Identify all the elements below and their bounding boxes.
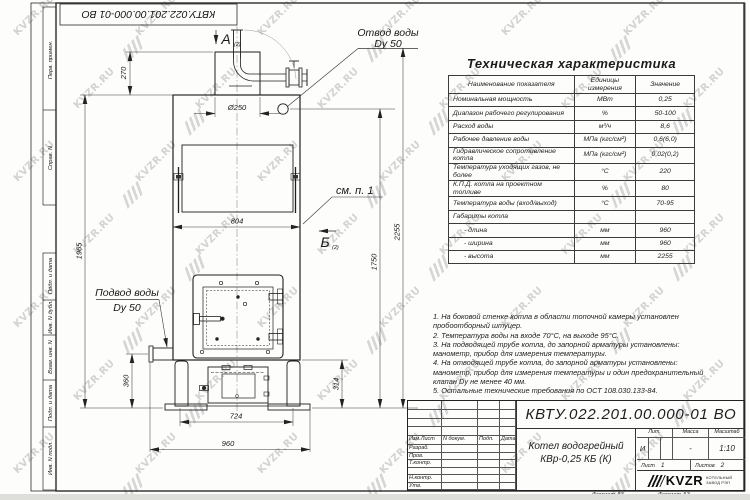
signature-row: Пров. — [408, 453, 516, 461]
field-sprav-n: Справ. N — [48, 145, 54, 170]
signature-role-label: Т.контр. — [408, 460, 442, 468]
sheet-edge-shadow — [0, 494, 750, 500]
dim-2255: 2255 — [393, 223, 402, 242]
spec-cell: Расход воды — [449, 120, 575, 133]
spare-cell — [500, 427, 516, 436]
signature-empty-cell — [478, 453, 500, 461]
spec-table-title: Техническая характеристика — [448, 56, 695, 71]
spec-cell: 960 — [636, 237, 695, 250]
signature-empty-cell — [442, 453, 478, 461]
note-item: 4. На отводящей трубе котла, до запорной… — [433, 358, 715, 386]
title-block: Изм.Лист N докум. Подп. Дата Разраб.Пров… — [407, 400, 745, 491]
spec-row: Номинальная мощностьМВт0,25 — [449, 94, 695, 107]
signature-empty-cell — [478, 445, 500, 453]
signature-rows: Разраб.Пров.Т.контр.Н.контр.Утв. — [408, 445, 516, 490]
dim-804: 804 — [231, 217, 244, 226]
spare-cell — [442, 410, 478, 419]
field-vzam-inv: Взам. инв. N — [48, 339, 54, 374]
note-item: 2. Температура воды на входе 70°С, на вы… — [433, 331, 715, 340]
lit-label: Лит. — [637, 429, 673, 438]
company-logo: KVZR КОТЕЛЬНЫЙ ЗАВОД РЭП — [637, 471, 745, 490]
door-hinge-top — [269, 294, 283, 301]
spec-cell: - ширина — [449, 237, 575, 250]
spec-cell — [574, 210, 636, 223]
product-name-line2: КВр-0,25 КБ (К) — [517, 453, 635, 466]
door-handle — [194, 314, 200, 325]
spec-cell: % — [574, 180, 636, 197]
signature-empty-cell — [500, 483, 516, 491]
field-podp-data-1: Подп. и дата — [48, 257, 54, 294]
signature-empty-cell — [442, 483, 478, 491]
spec-row: К.П.Д. котла на проектном топливе%80 — [449, 180, 695, 197]
spec-cell: Диапазон рабочего регулирования — [449, 107, 575, 120]
spec-cell: °С — [574, 197, 636, 210]
spec-cell: МПа (кгс/см²) — [574, 134, 636, 147]
spec-cell: 0,6(6,0) — [636, 134, 695, 147]
signature-empty-cell — [478, 460, 500, 468]
spec-cell: 70-95 — [636, 197, 695, 210]
mass-value: - — [673, 438, 709, 460]
boiler-front-view — [149, 30, 310, 410]
spare-cell — [442, 401, 478, 410]
spec-row: Габариты котла — [449, 210, 695, 223]
revision-spare-grid — [408, 401, 516, 436]
spare-cell — [408, 419, 442, 428]
product-name: Котел водогрейный КВр-0,25 КБ (К) — [516, 429, 636, 490]
view-rotation-arc — [244, 30, 296, 79]
spec-cell: м³/ч — [574, 120, 636, 133]
scale-label: Масштаб — [709, 429, 745, 438]
lit-mass-scale-block: Лит. Масса Масштаб И - 1:10 Лист1 Листов… — [637, 429, 745, 471]
signature-role-label — [408, 468, 442, 476]
spec-cell: 0,25 — [636, 94, 695, 107]
spec-cell: - высота — [449, 251, 575, 264]
col-data: Дата — [500, 436, 516, 445]
inlet-pipe — [149, 346, 173, 362]
drawing-sheet: KVZR.RUKVZR.RUKVZR.RUKVZR.RUKVZR.RUKVZR.… — [0, 0, 750, 500]
view-b-sub: (2) — [332, 245, 339, 251]
spec-row: Гидравлическое сопротивление котлаМПа (к… — [449, 147, 695, 164]
ash-door — [200, 366, 270, 404]
spare-cell — [478, 419, 500, 428]
spec-col-value: Значение — [636, 76, 695, 94]
spare-cell — [500, 410, 516, 419]
revision-header-row: Изм.Лист N докум. Подп. Дата — [408, 436, 516, 445]
spare-cell — [500, 401, 516, 410]
spec-row: - длинамм960 — [449, 224, 695, 237]
spec-row: - ширинамм960 — [449, 237, 695, 250]
signature-role-label: Утв. — [408, 483, 442, 491]
spec-cell: МПа (кгс/см²) — [574, 147, 636, 164]
spec-cell: - длина — [449, 224, 575, 237]
signature-row: Н.контр. — [408, 475, 516, 483]
spare-cell — [478, 401, 500, 410]
view-b-label: Б — [320, 234, 329, 250]
dim-360: 360 — [122, 374, 131, 387]
signature-empty-cell — [500, 468, 516, 476]
spec-cell: мм — [574, 251, 636, 264]
frame-field-labels: Перв. примен. Справ. N Подп. и дата Инв.… — [48, 8, 215, 475]
spec-row: Температура воды (вход/выход)°С70-95 — [449, 197, 695, 210]
spare-cell — [478, 410, 500, 419]
see-note-label: см. п. 1 — [336, 185, 373, 197]
mass-label: Масса — [673, 429, 709, 438]
signature-row: Разраб. — [408, 445, 516, 453]
dim-724: 724 — [230, 412, 243, 421]
signature-role-label: Разраб. — [408, 445, 442, 453]
view-a-sub: (2) — [234, 42, 241, 48]
spec-cell — [636, 210, 695, 223]
spec-cell: Габариты котла — [449, 210, 575, 223]
fuel-door — [193, 275, 283, 358]
spec-cell: Рабочее давление воды — [449, 134, 575, 147]
dimensions — [80, 48, 418, 452]
product-name-line1: Котел водогрейный — [517, 440, 635, 453]
spec-row: Рабочее давление водыМПа (кгс/см²)0,6(6,… — [449, 134, 695, 147]
dim-1965: 1965 — [75, 242, 84, 260]
spec-cell: 2255 — [636, 251, 695, 264]
spec-cell: 0,02(0,2) — [636, 147, 695, 164]
signature-row: Утв. — [408, 483, 516, 491]
door-hinge-bottom — [269, 334, 283, 341]
signature-empty-cell — [442, 445, 478, 453]
note-item: 1. На боковой стенке котла в области топ… — [433, 312, 715, 331]
spec-col-name: Наименование показателя — [449, 76, 575, 94]
spec-cell: 8,6 — [636, 120, 695, 133]
spare-cell — [408, 410, 442, 419]
spec-cell: Температура воды (вход/выход) — [449, 197, 575, 210]
spec-cell: 80 — [636, 180, 695, 197]
field-podp-data-2: Подп. и дата — [48, 384, 54, 421]
valve-icon — [286, 61, 307, 87]
lit-cell-2 — [649, 438, 661, 460]
signature-role-label: Н.контр. — [408, 475, 442, 483]
spec-cell: % — [574, 107, 636, 120]
dim-270: 270 — [119, 66, 128, 80]
signature-row — [408, 468, 516, 476]
spec-cell: 220 — [636, 164, 695, 181]
dim-960: 960 — [222, 439, 235, 448]
signature-empty-cell — [478, 468, 500, 476]
signature-empty-cell — [500, 460, 516, 468]
spec-header-row: Наименование показателя Единицы измерени… — [449, 76, 695, 94]
sheet-cell: Лист1 — [637, 460, 691, 471]
dim-250: Ø250 — [227, 103, 247, 112]
dim-1750: 1750 — [370, 253, 379, 271]
spec-cell: МВт — [574, 94, 636, 107]
spec-cell: К.П.Д. котла на проектном топливе — [449, 180, 575, 197]
dim-314: 314 — [332, 378, 341, 391]
spare-cell — [500, 419, 516, 428]
sheets-cell: Листов2 — [691, 460, 745, 471]
kvzr-logo-text: KVZR — [666, 473, 703, 488]
signature-empty-cell — [442, 475, 478, 483]
spare-cell — [408, 427, 442, 436]
spec-cell: Номинальная мощность — [449, 94, 575, 107]
spare-cell — [478, 427, 500, 436]
signature-empty-cell — [478, 483, 500, 491]
signature-empty-cell — [500, 453, 516, 461]
spec-cell: Температура уходящих газов, не более — [449, 164, 575, 181]
spare-cell — [442, 427, 478, 436]
top-rotated-stamp: КВТУ.022.201.00.000-01 ВО — [82, 8, 216, 20]
inlet-label-line1: Подвод воды — [95, 287, 159, 299]
signature-empty-cell — [500, 475, 516, 483]
lit-cell-3 — [661, 438, 673, 460]
spec-cell: мм — [574, 224, 636, 237]
col-podp: Подп. — [478, 436, 500, 445]
spec-cell: °С — [574, 164, 636, 181]
upper-panel — [182, 145, 293, 212]
spec-row: Диапазон рабочего регулирования%50-100 — [449, 107, 695, 120]
kvzr-stripes-icon — [647, 475, 666, 487]
boiler-base — [165, 361, 310, 410]
boiler-body — [173, 95, 300, 360]
field-inv-dubl: Инв. N дубл. — [48, 300, 54, 334]
signature-empty-cell — [442, 468, 478, 476]
signature-row: Т.контр. — [408, 460, 516, 468]
note-item: 3. На подводящей трубе котла, до запорно… — [433, 340, 715, 359]
signature-empty-cell — [478, 475, 500, 483]
signature-empty-cell — [442, 460, 478, 468]
dimension-labels: 270 1965 Ø250 804 2255 1750 360 314 724 … — [75, 66, 402, 448]
spare-cell — [408, 401, 442, 410]
document-designation: КВТУ.022.201.00.000-01 ВО — [516, 401, 745, 429]
signature-role-label: Пров. — [408, 453, 442, 461]
scale-value: 1:10 — [709, 438, 745, 460]
col-n-dokum: N докум. — [442, 436, 478, 445]
company-subtitle: КОТЕЛЬНЫЙ ЗАВОД РЭП — [706, 476, 732, 485]
signature-empty-cell — [500, 445, 516, 453]
spec-table: Наименование показателя Единицы измерени… — [448, 75, 695, 264]
spec-col-units: Единицы измерения — [574, 76, 636, 94]
inlet-label-line2: Dy 50 — [113, 302, 141, 314]
col-izm-list: Изм.Лист — [408, 436, 442, 445]
callouts: А (2) Б (2) см. п. 1 Отвод воды Dy 50 По… — [95, 27, 419, 347]
field-perv-primen: Перв. примен. — [48, 41, 54, 80]
view-a-label: А — [220, 31, 230, 47]
lit-value: И — [637, 438, 649, 460]
spec-row: Расход водым³/ч8,6 — [449, 120, 695, 133]
technical-notes: 1. На боковой стенке котла в области топ… — [433, 312, 715, 396]
spec-cell: 50-100 — [636, 107, 695, 120]
spec-cell: Гидравлическое сопротивление котла — [449, 147, 575, 164]
field-inv-podl: Инв. N подл. — [48, 441, 54, 475]
spec-cell: мм — [574, 237, 636, 250]
spec-row: Температура уходящих газов, не более°С22… — [449, 164, 695, 181]
outlet-nozzle — [278, 104, 288, 114]
spare-cell — [442, 419, 478, 428]
spec-row: - высотамм2255 — [449, 251, 695, 264]
note-item: 5. Остальные технические требования по О… — [433, 386, 715, 395]
spec-cell: 960 — [636, 224, 695, 237]
